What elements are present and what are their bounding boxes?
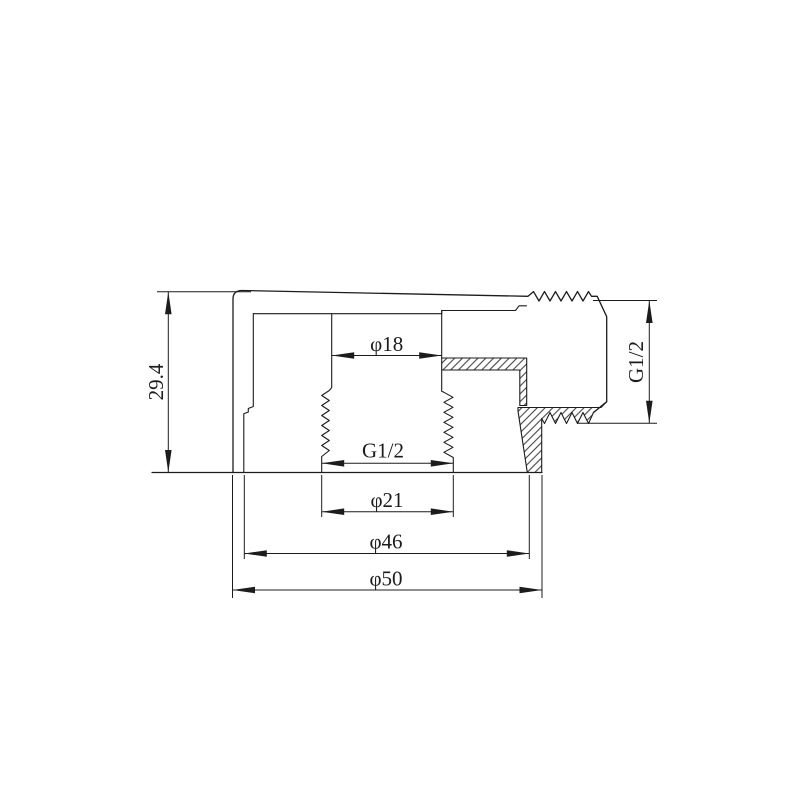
dimension-outlet-thread: G1/2	[577, 301, 657, 424]
technical-drawing: 29.4 φ18 G1/2 φ21 φ46 φ50	[0, 0, 800, 800]
dimension-thread-major-diameter: φ21	[322, 475, 454, 517]
arrowhead-down	[646, 401, 653, 424]
dimension-outer-body-label: φ50	[369, 567, 402, 591]
dimension-inner-body-label: φ46	[369, 530, 402, 554]
section-hatch-top-wall	[442, 358, 527, 406]
dimension-internal-thread-label: G1/2	[362, 439, 404, 463]
dimension-thread-major-label: φ21	[370, 488, 403, 512]
arrowhead-left	[233, 587, 256, 594]
arrowhead-left	[322, 460, 345, 467]
section-hatching	[442, 358, 607, 473]
inner-left-profile	[244, 314, 254, 473]
bore-wall-left-thread	[322, 314, 332, 473]
dimension-height: 29.4	[144, 292, 251, 473]
section-hatch-bottom-wall	[518, 402, 607, 473]
arrowhead-left	[322, 508, 345, 515]
dimension-height-label: 29.4	[144, 363, 168, 400]
arrowhead-down	[165, 450, 172, 473]
arrowhead-left	[332, 352, 355, 359]
arrowhead-right	[507, 550, 530, 557]
dimension-internal-thread: G1/2	[322, 439, 454, 467]
arrowhead-up	[646, 301, 653, 324]
inner-top-line	[253, 306, 526, 314]
bore-wall-right-thread	[442, 370, 454, 473]
arrowhead-left	[244, 550, 266, 557]
dimension-bore-label: φ18	[370, 332, 403, 356]
arrowhead-up	[165, 292, 172, 315]
arrowhead-right	[431, 460, 454, 467]
arrowhead-right	[431, 508, 454, 515]
arrowhead-right	[419, 352, 442, 359]
dimension-bore-diameter: φ18	[332, 332, 442, 359]
dimension-outlet-thread-label: G1/2	[624, 341, 648, 383]
arrowhead-right	[520, 587, 543, 594]
drawing-canvas: 29.4 φ18 G1/2 φ21 φ46 φ50	[0, 0, 800, 800]
body-outer-profile	[233, 291, 607, 473]
